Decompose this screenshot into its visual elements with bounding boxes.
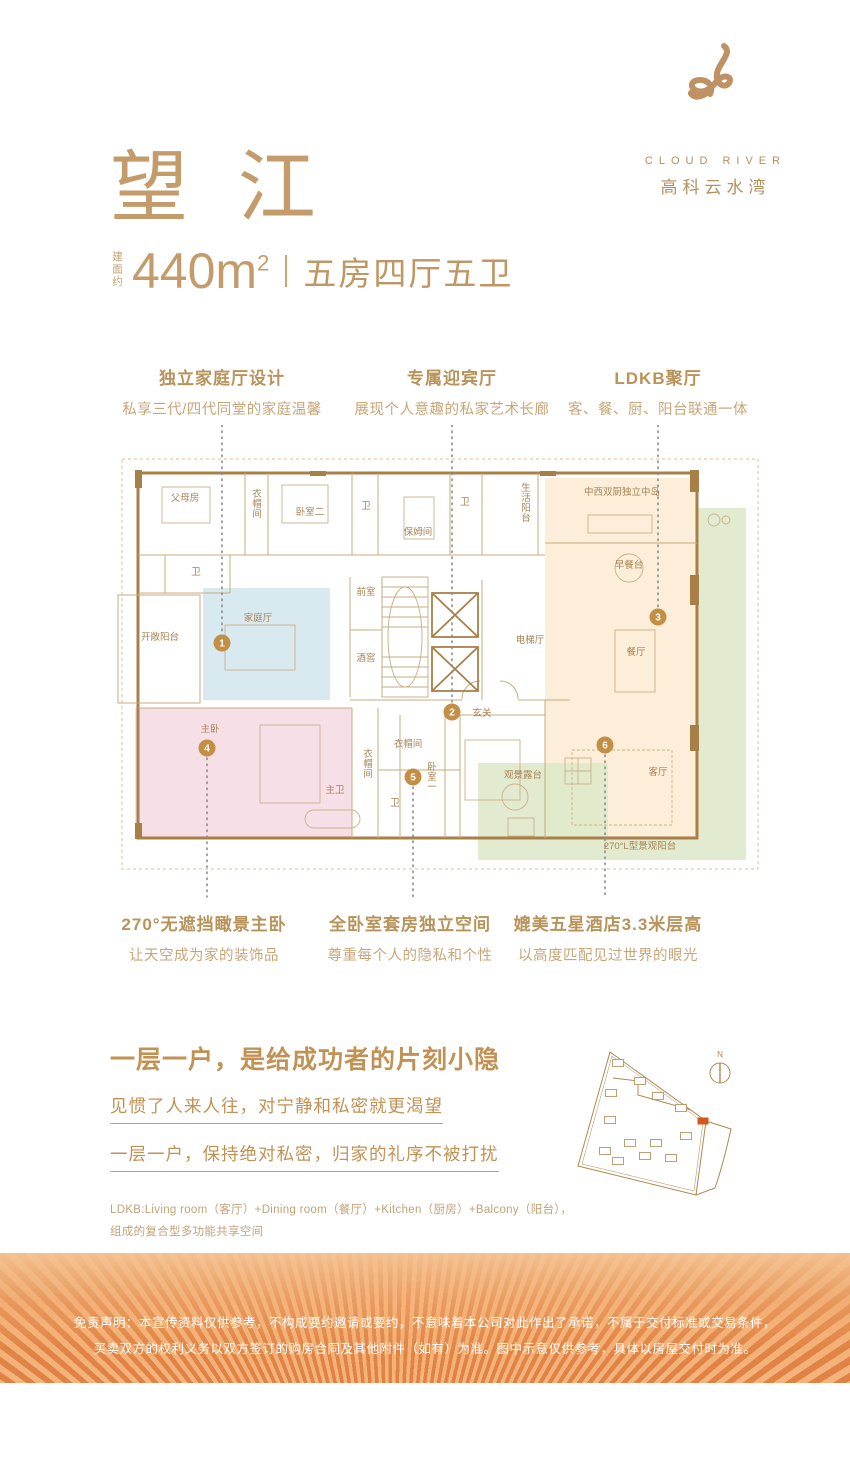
site-building xyxy=(613,1158,624,1165)
marker-number: 4 xyxy=(204,744,210,755)
area-value: 440m2 xyxy=(132,246,269,296)
title-block: 望 江 建面约 440m2 五房四厅五卫 xyxy=(110,148,513,296)
marker-number: 2 xyxy=(449,708,455,719)
room-label: 卧室二 xyxy=(296,506,325,518)
logo-en: CLOUD RIVER xyxy=(628,155,803,167)
room-label: 卫 xyxy=(191,567,201,578)
room-label: 主卧 xyxy=(200,723,220,735)
floor-plan-svg: 父母房衣帽间卧室二卫保姆间卫生活阳台卫开敞阳台家庭厅前室酒窖电梯厅玄关中西双厨独… xyxy=(110,425,770,900)
site-building xyxy=(640,1153,651,1160)
site-building xyxy=(613,1060,624,1067)
room-label: 玄关 xyxy=(472,707,492,719)
room-label: 卧室一 xyxy=(427,761,437,793)
site-building xyxy=(681,1133,692,1140)
footnote-line-2: 组成的复合型多功能共享空间 xyxy=(110,1222,590,1244)
room-label: 衣帽间 xyxy=(252,488,262,520)
footnote-line-1: LDKB:Living room（客厅）+Dining room（餐厅）+Kit… xyxy=(110,1200,590,1222)
elevators xyxy=(432,593,478,691)
statement-block: 一层一户，是给成功者的片刻小隐 见惯了人来人往，对宁静和私密就更渴望 一层一户，… xyxy=(110,1040,590,1244)
room-label: 衣帽间 xyxy=(363,748,373,780)
logo-cn: 高科云水湾 xyxy=(628,173,803,198)
room-label: 保姆间 xyxy=(404,526,433,538)
room-label: 父母房 xyxy=(171,492,200,504)
site-building xyxy=(666,1155,677,1162)
site-building xyxy=(653,1093,664,1100)
room-label: 卫 xyxy=(460,497,470,508)
callout-ldkb: LDKB聚厅 客、餐、厨、阳台联通一体 xyxy=(518,364,798,419)
poster-page: CLOUD RIVER 高科云水湾 望 江 建面约 440m2 五房四厅五卫 独… xyxy=(0,0,850,1461)
statement-heading: 一层一户，是给成功者的片刻小隐 xyxy=(110,1040,590,1076)
zone-master-bedroom xyxy=(135,708,352,838)
disclaimer-text: 免责声明：本宣传资料仅供参考，不构成要约邀请或要约，不意味着本公司对此作出了承诺… xyxy=(0,1253,850,1362)
spec-row: 建面约 440m2 五房四厅五卫 xyxy=(110,246,513,296)
disclaimer-banner: 免责声明：本宣传资料仅供参考，不构成要约邀请或要约，不意味着本公司对此作出了承诺… xyxy=(0,1253,850,1383)
marker-number: 6 xyxy=(602,741,608,752)
north-label: N xyxy=(717,1050,723,1059)
statement-line-2: 一层一户，保持绝对私密，归家的礼序不被打扰 xyxy=(110,1141,499,1172)
room-label: 衣帽间 xyxy=(394,738,423,750)
room-label: 早餐台 xyxy=(615,559,644,571)
room-label: 中西双厨独立中岛 xyxy=(584,486,660,498)
room-label: 电梯厅 xyxy=(516,634,545,646)
room-label: 卫 xyxy=(361,501,371,512)
site-building xyxy=(676,1105,687,1112)
disclaimer-line-1: 免责声明：本宣传资料仅供参考，不构成要约邀请或要约，不意味着本公司对此作出了承诺… xyxy=(0,1311,850,1337)
room-label: 主卫 xyxy=(325,784,345,796)
site-building xyxy=(651,1140,662,1147)
room-label: 生活阳台 xyxy=(521,482,531,524)
callout-ceiling-height: 媲美五星酒店3.3米层高 以高度匹配见过世界的眼光 xyxy=(468,910,748,965)
room-label: 客厅 xyxy=(648,766,668,778)
callout-desc: 以高度匹配见过世界的眼光 xyxy=(468,944,748,965)
room-label: 270°L型景观阳台 xyxy=(604,840,676,852)
unit-title: 望 江 xyxy=(110,148,513,226)
room-label: 卫 xyxy=(390,798,400,809)
open-balcony xyxy=(118,595,200,703)
floor-plan: 父母房衣帽间卧室二卫保姆间卫生活阳台卫开敞阳台家庭厅前室酒窖电梯厅玄关中西双厨独… xyxy=(110,425,770,900)
area-prefix: 建面约 xyxy=(110,251,125,291)
site-buildings xyxy=(600,1060,709,1165)
river-swirl-icon xyxy=(680,42,752,142)
statement-line-1: 见惯了人来人往，对宁静和私密就更渴望 xyxy=(110,1093,443,1124)
site-building-highlight xyxy=(698,1118,709,1125)
room-label: 餐厅 xyxy=(626,646,646,658)
site-plan-svg: N xyxy=(573,1033,795,1235)
site-building xyxy=(635,1078,646,1085)
site-building xyxy=(605,1117,616,1124)
compass-icon: N xyxy=(710,1050,730,1083)
room-spec: 五房四厅五卫 xyxy=(303,247,513,295)
marker-number: 5 xyxy=(410,773,416,784)
site-building xyxy=(600,1148,611,1155)
room-label: 家庭厅 xyxy=(244,612,273,624)
brand-logo: CLOUD RIVER 高科云水湾 xyxy=(628,42,803,198)
marker-number: 3 xyxy=(655,613,661,624)
room-label: 前室 xyxy=(356,586,375,598)
callout-desc: 客、餐、厨、阳台联通一体 xyxy=(518,398,798,419)
ldkb-footnote: LDKB:Living room（客厅）+Dining room（餐厅）+Kit… xyxy=(110,1200,590,1244)
spec-divider xyxy=(285,255,287,287)
room-label: 观景露台 xyxy=(504,769,542,781)
room-label: 酒窖 xyxy=(356,652,375,664)
site-building xyxy=(606,1090,617,1097)
marker-number: 1 xyxy=(219,639,225,650)
room-label: 开敞阳台 xyxy=(141,631,179,643)
site-plan: N xyxy=(573,1033,795,1235)
callout-title: LDKB聚厅 xyxy=(518,364,798,389)
disclaimer-line-2: 买卖双方的权利义务以双方签订的购房合同及其他附件（如有）为准。图中示意仅供参考，… xyxy=(0,1337,850,1363)
callout-title: 媲美五星酒店3.3米层高 xyxy=(468,910,748,935)
site-building xyxy=(625,1140,636,1147)
staircase xyxy=(382,577,428,697)
